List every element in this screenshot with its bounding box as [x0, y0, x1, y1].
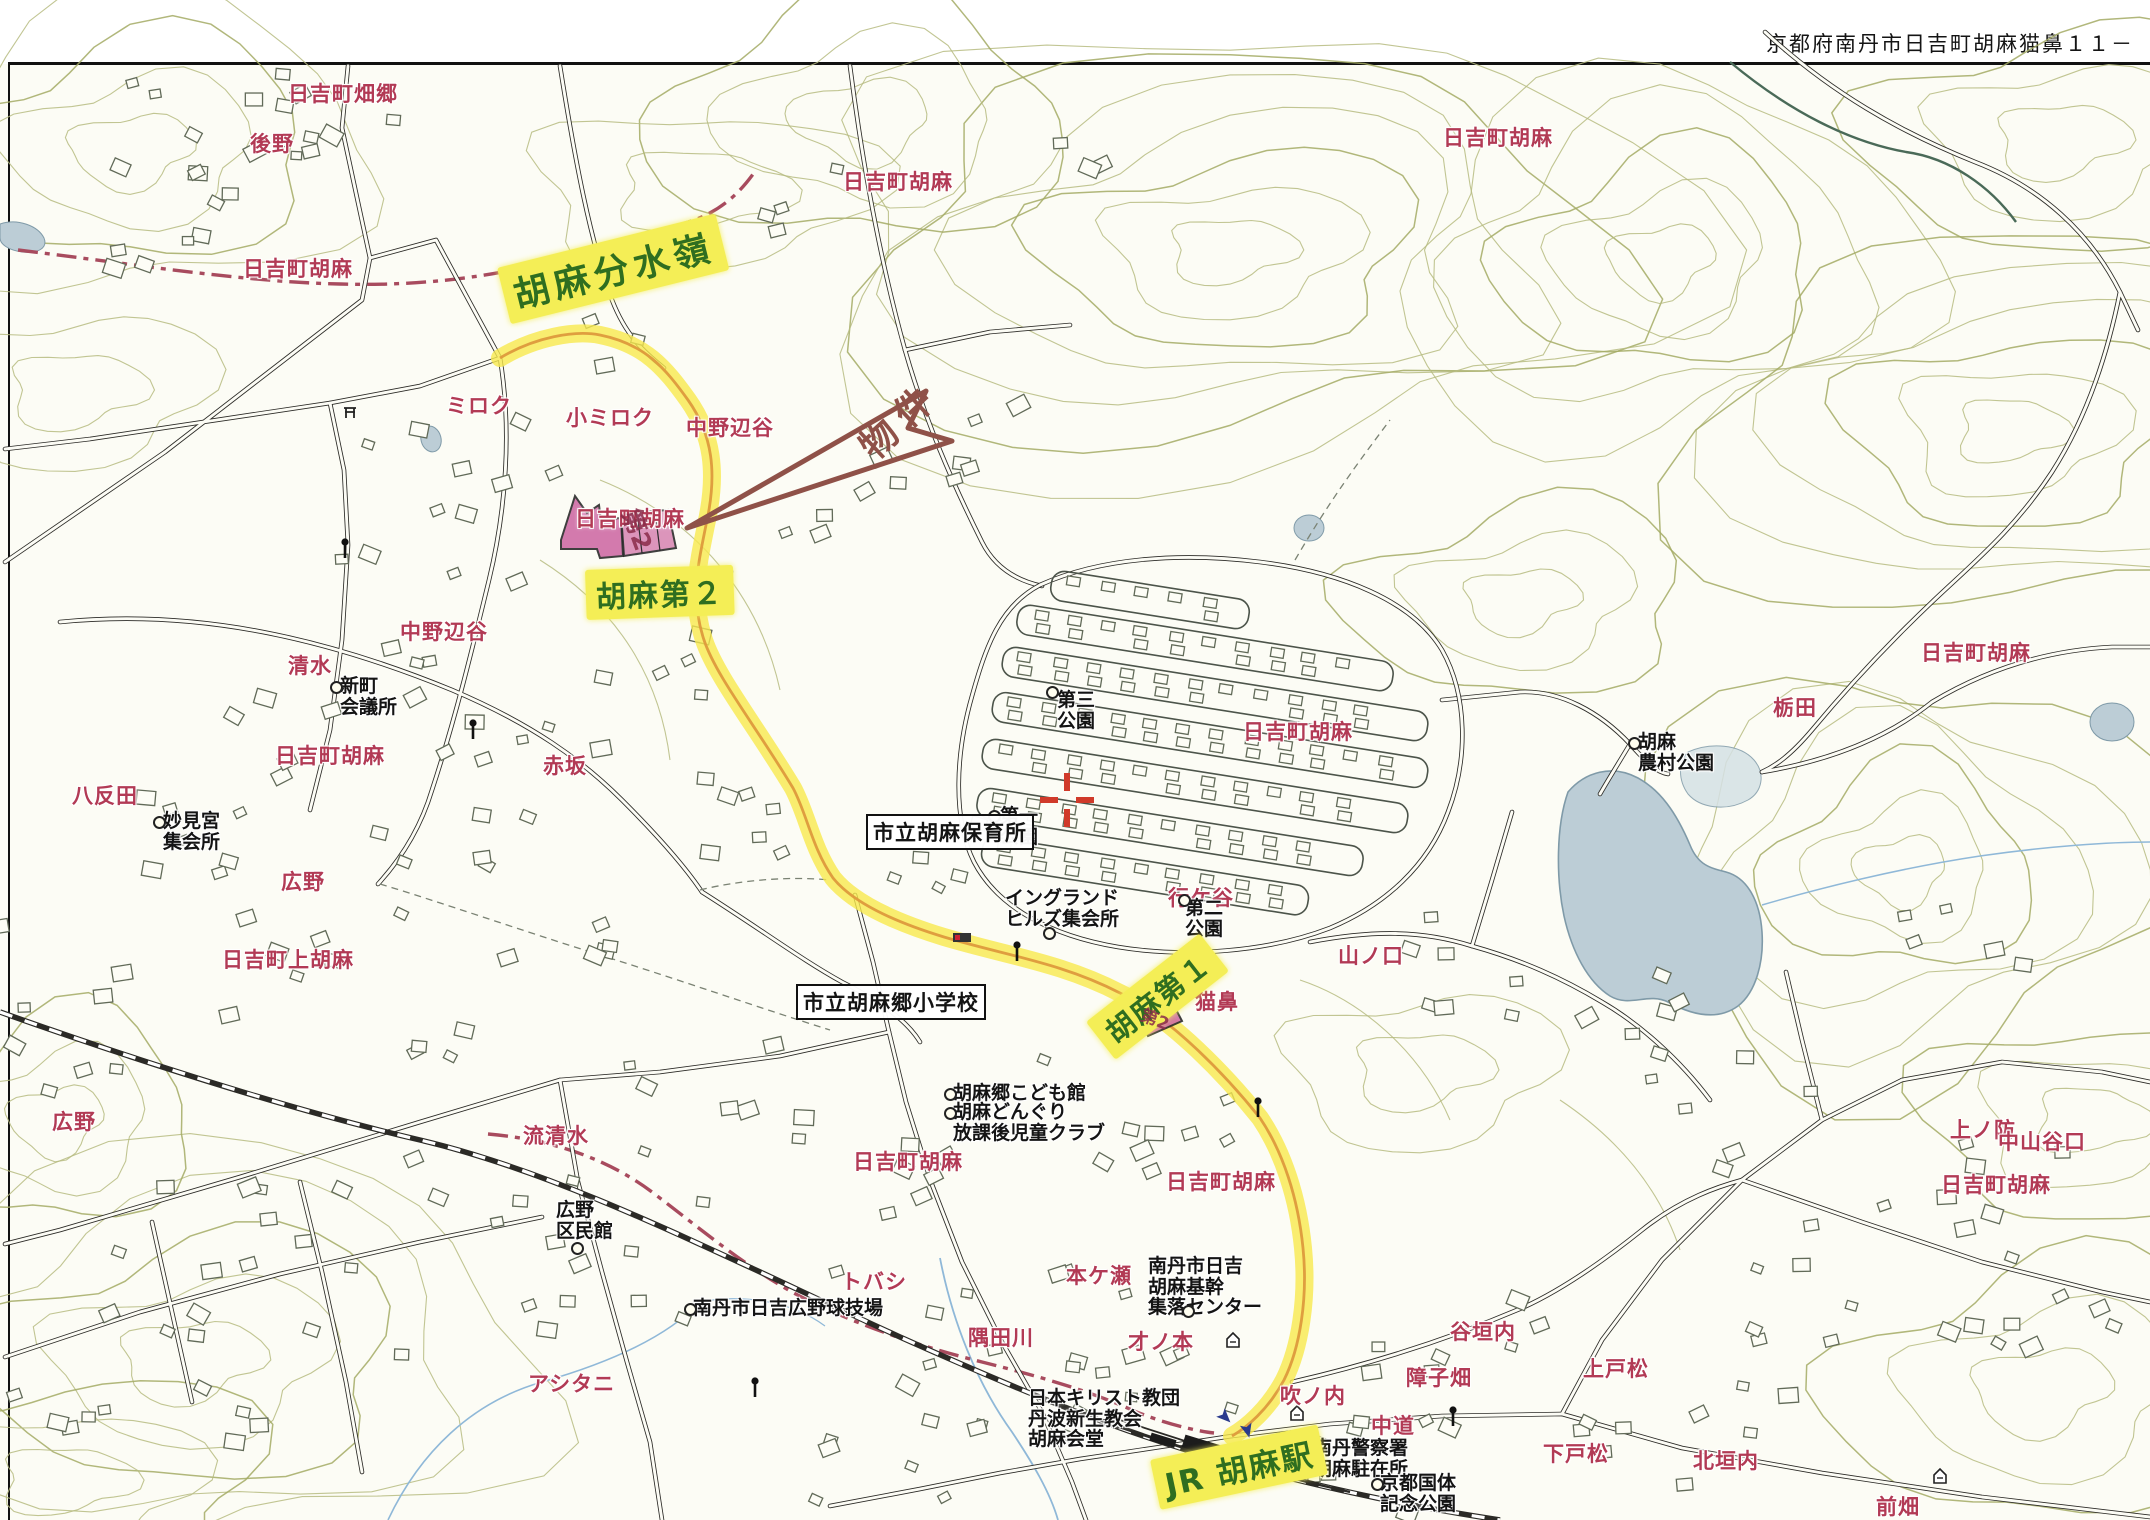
map-canvas	[0, 0, 2150, 1520]
public-building-icon	[1291, 1406, 1303, 1420]
public-building-icon	[1934, 1469, 1946, 1483]
torii-icon	[344, 408, 356, 418]
map-sheet: 京都府南丹市日吉町胡麻猫鼻１１－ 日吉町畑郷後野日吉町胡麻ミロク小ミロク中野辺谷…	[0, 0, 2150, 1520]
bus-stop-icon	[953, 933, 971, 942]
utility-pole-icon	[751, 1377, 758, 1397]
public-building-icon	[1227, 1333, 1239, 1347]
